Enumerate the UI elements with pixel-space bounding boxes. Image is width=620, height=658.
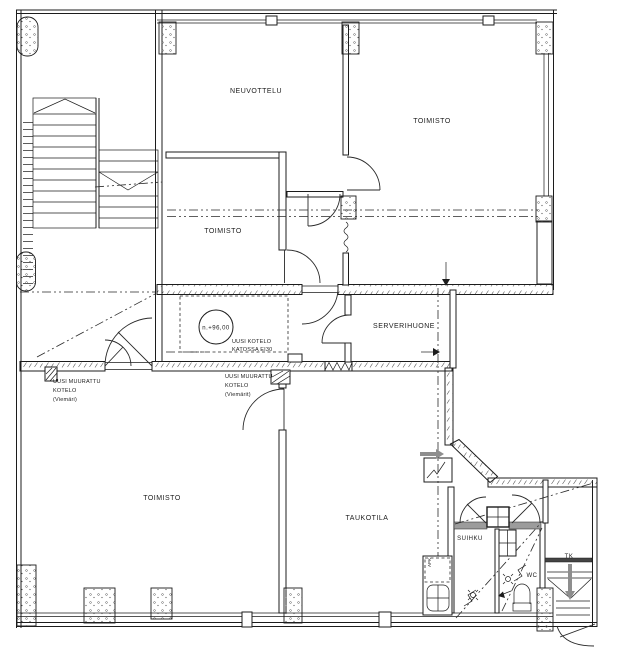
room-label-suihku: SUIHKU [457,536,483,542]
room-label-tk: TK [565,554,574,560]
appliance-label: APK [427,558,432,567]
masonry-walls [20,285,597,488]
door-arc [302,288,338,324]
door-arc [322,315,350,343]
toilet [514,584,530,604]
room-label-serverihuone: SERVERIHUONE [373,323,435,330]
doors [105,157,595,646]
ceiling-duct-label-1: UUSI KOTELO [232,339,272,345]
window-mullion [266,16,277,25]
door-arc [460,497,486,523]
door-arc-exterior [557,624,595,646]
mid-duct-label-1: UUSI MUURATTU [225,374,273,380]
left-duct-label-2: KOTELO [53,388,77,394]
floor-drain [471,593,476,598]
room-label-neuvottelu: NEUVOTTELU [230,88,282,95]
new-wall-gray [509,522,541,529]
level-mark-text: n.+96,00 [202,326,230,332]
door-arc [347,157,380,190]
insulation-squiggle [344,222,348,252]
room-label-toimisto-top: TOIMISTO [413,118,451,125]
ceiling-duct-label-2: KATOSSA EI30 [232,347,272,353]
floor-plan-sheet: n.+96,00 NEUVOTTELU TOIMISTO TOIMISTO SE… [0,0,620,658]
room-label-taukotila: TAUKOTILA [346,515,389,522]
level-mark: n.+96,00 [199,310,233,344]
room-labels: NEUVOTTELU TOIMISTO TOIMISTO SERVERIHUON… [143,88,573,579]
annotation-labels: UUSI KOTELO KATOSSA EI30 UUSI MUURATTU K… [53,339,432,567]
window-mullion [379,612,391,627]
oval-column [17,252,36,291]
left-duct-label-1: UUSI MUURATTU [53,379,101,385]
mid-duct-label-3: (Viemärit) [225,392,251,398]
floor-plan-drawing: n.+96,00 NEUVOTTELU TOIMISTO TOIMISTO SE… [0,0,620,658]
door-arc [512,495,540,523]
interior-walls [166,25,592,613]
staircase-main [33,98,162,228]
oval-column [17,17,38,56]
door-arc [285,250,321,283]
door-arc-double-right [105,340,131,366]
break-mark [514,565,526,581]
room-label-wc: WC [527,573,538,579]
floor-drain [506,577,511,582]
left-duct-label-3: (Viemäri) [53,397,77,403]
section-lines [20,210,590,618]
mid-duct-label-2: KOTELO [225,383,249,389]
window-mullion [242,612,252,627]
room-label-toimisto-bottom: TOIMISTO [143,495,181,502]
window-mullion [483,16,494,25]
room-label-toimisto-small: TOIMISTO [204,228,242,235]
staircase-tk [547,564,592,615]
